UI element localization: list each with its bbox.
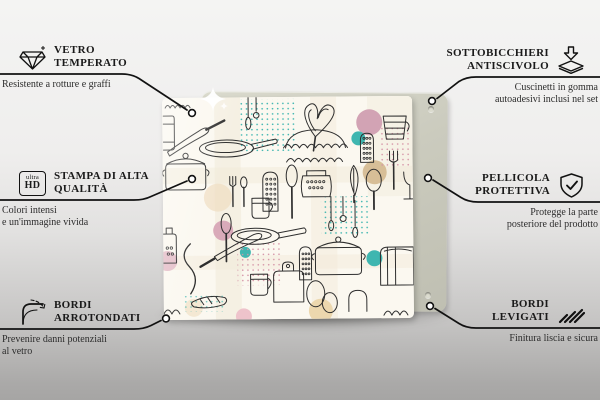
feature-polished-edges: BORDI LEVIGATI Finitura liscia e sicura xyxy=(408,294,600,345)
feature-desc-line: Protegge la parte xyxy=(408,207,598,219)
feature-anti-slip-pads: SOTTOBICCHIERI ANTISCIVOLO Cuscinetti in… xyxy=(408,43,600,106)
feature-title-line: QUALITÀ xyxy=(54,183,149,197)
ultra-hd-icon: ultra HD xyxy=(19,171,46,196)
feature-title-line: PROTETTIVA xyxy=(475,185,550,199)
feature-title-line: ARROTONDATI xyxy=(54,312,141,326)
anti-slip-pad-icon xyxy=(557,46,585,74)
feature-title-line: BORDI xyxy=(54,299,141,313)
feature-rounded-edges: BORDI ARROTONDATI Prevenire danni potenz… xyxy=(0,295,178,358)
diamond-icon xyxy=(19,44,46,71)
feature-tempered-glass: VETRO TEMPERATO Resistente a rotture e g… xyxy=(0,40,178,91)
feature-desc-line: Resistente a rotture e graffi xyxy=(2,79,178,91)
product-infographic: VETRO TEMPERATO Resistente a rotture e g… xyxy=(0,0,600,400)
feature-title-line: LEVIGATI xyxy=(492,311,549,325)
glass-panel-print xyxy=(162,96,414,320)
ultra-hd-icon-text-bottom: HD xyxy=(25,181,41,191)
feature-desc-line: Prevenire danni potenziali xyxy=(2,334,178,346)
feature-desc-line: al vetro xyxy=(2,346,178,358)
feature-title-line: VETRO xyxy=(54,44,127,58)
feature-desc-line: Colori intensi xyxy=(2,205,178,217)
feature-title-line: ANTISCIVOLO xyxy=(446,60,549,74)
mounting-hole xyxy=(428,106,434,112)
shield-check-icon xyxy=(558,172,585,199)
feature-title-line: STAMPA DI ALTA xyxy=(54,170,149,184)
feature-print-quality: ultra HD STAMPA DI ALTA QUALITÀ Colori i… xyxy=(0,166,178,229)
feature-desc-line: Cuscinetti in gomma xyxy=(408,82,598,94)
feature-title-line: TEMPERATO xyxy=(54,57,127,71)
kitchen-doodle-pattern xyxy=(162,96,414,320)
feature-desc-line: e un'immagine vivida xyxy=(2,217,178,229)
feature-title-line: SOTTOBICCHIERI xyxy=(446,47,549,61)
feature-title-line: BORDI xyxy=(492,298,549,312)
feature-protective-film: PELLICOLA PROTETTIVA Protegge la parte p… xyxy=(408,168,600,231)
polished-edge-icon xyxy=(557,298,585,325)
feature-title-line: PELLICOLA xyxy=(475,172,550,186)
feature-desc-line: autoadesivi inclusi nel set xyxy=(408,94,598,106)
shine-sparkle-icon xyxy=(200,86,230,116)
feature-desc-line: Finitura liscia e sicura xyxy=(408,333,598,345)
feature-desc-line: posteriore del prodotto xyxy=(408,219,598,231)
rounded-corner-icon xyxy=(19,299,46,326)
